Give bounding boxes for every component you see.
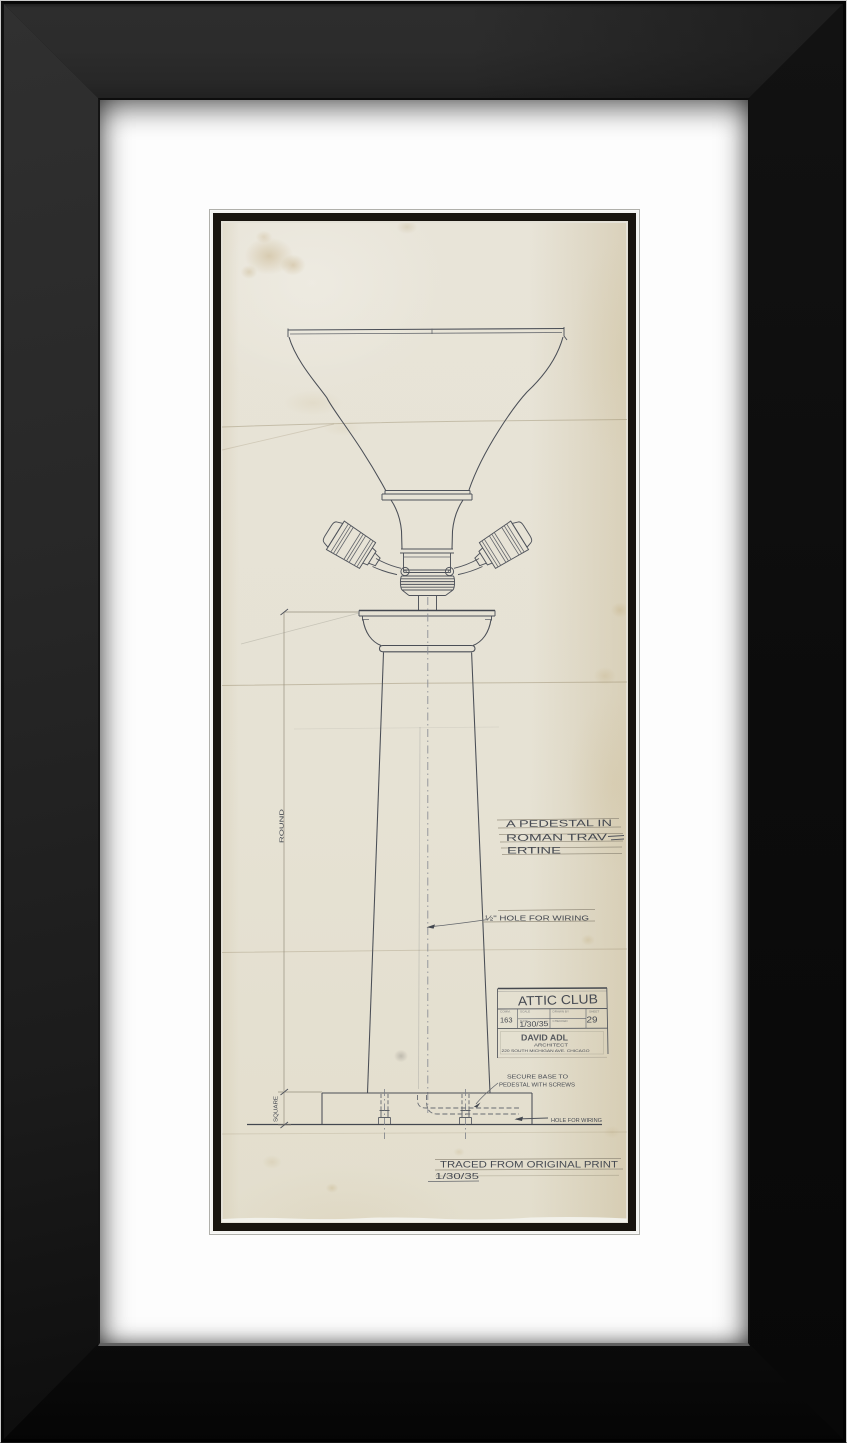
svg-text:163: 163: [500, 1016, 513, 1025]
svg-text:HOLE FOR WIRING: HOLE FOR WIRING: [551, 1118, 602, 1124]
svg-text:DAVID ADL: DAVID ADL: [521, 1033, 568, 1043]
svg-text:CHECKED: CHECKED: [553, 1019, 569, 1023]
svg-text:TRACED FROM ORIGINAL PRINT: TRACED FROM ORIGINAL PRINT: [440, 1160, 619, 1170]
svg-text:29: 29: [587, 1015, 598, 1025]
svg-text:1/30/35: 1/30/35: [519, 1019, 548, 1029]
svg-text:½" HOLE FOR WIRING: ½" HOLE FOR WIRING: [485, 915, 589, 923]
svg-text:ROUND: ROUND: [280, 809, 286, 843]
svg-text:A PEDESTAL IN: A PEDESTAL IN: [506, 818, 612, 830]
svg-text:ROMAN TRAV: ROMAN TRAV: [506, 832, 608, 844]
svg-text:1/30/35: 1/30/35: [435, 1171, 479, 1181]
svg-text:SHEET: SHEET: [589, 1009, 599, 1013]
svg-text:SECURE BASE TO: SECURE BASE TO: [507, 1075, 569, 1081]
svg-text:COMM.: COMM.: [500, 1009, 511, 1013]
svg-text:PEDESTAL WITH SCREWS: PEDESTAL WITH SCREWS: [499, 1083, 575, 1089]
svg-text:ATTIC CLUB: ATTIC CLUB: [518, 991, 598, 1008]
svg-text:ARCHITECT: ARCHITECT: [534, 1042, 568, 1047]
svg-text:DRAWN BY: DRAWN BY: [553, 1009, 570, 1013]
svg-text:SQUARE: SQUARE: [274, 1095, 280, 1122]
svg-text:220 SOUTH MICHIGAN AVE. CHICA: 220 SOUTH MICHIGAN AVE. CHICAGO: [502, 1049, 590, 1053]
svg-text:ERTINE: ERTINE: [507, 846, 561, 857]
svg-text:SCALE: SCALE: [520, 1009, 530, 1013]
